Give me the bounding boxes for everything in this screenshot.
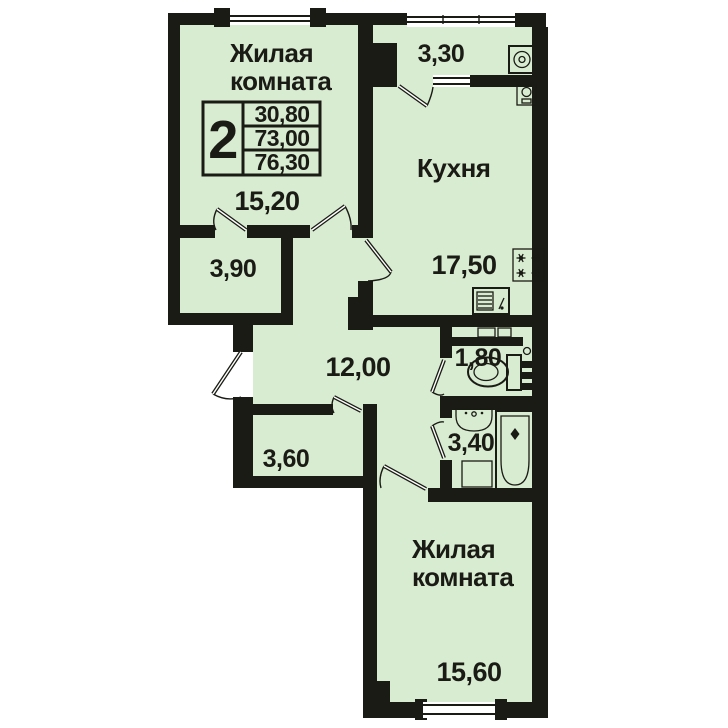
closet-area: 3,60 [263,445,310,473]
floor-plan: 2 30,80 73,00 76,30 Жилая комната 15,20 … [0,0,728,728]
balcony-kitchen-window [433,75,470,87]
living-bottom-window [423,702,495,718]
floor-plan-page: 2 30,80 73,00 76,30 Жилая комната 15,20 … [0,0,728,728]
kitchen-area: 17,50 [431,250,496,280]
info-table: 2 30,80 73,00 76,30 [203,101,320,175]
living-top-window [230,13,310,25]
living-bottom-area: 15,60 [436,657,501,687]
hall-area: 12,00 [325,352,390,382]
total-area-value: 76,30 [254,149,309,175]
balcony-area: 3,30 [418,40,465,68]
wc-area: 1,80 [455,344,502,372]
living-bottom-name-1: Жилая [411,534,495,564]
balcony-glazing [407,13,515,27]
entrance-door [213,352,241,399]
living-area-value: 30,80 [254,101,309,127]
apartment-area-value: 73,00 [254,125,309,151]
living-top-area: 15,20 [234,186,299,216]
storage-area: 3,90 [210,255,257,283]
living-top-name-2: комната [230,66,332,96]
bathroom-area: 3,40 [448,429,495,457]
living-bottom-name-2: комната [412,562,514,592]
kitchen-name: Кухня [417,153,490,183]
living-top-name-1: Жилая [229,38,313,68]
rooms-count: 2 [208,110,238,170]
